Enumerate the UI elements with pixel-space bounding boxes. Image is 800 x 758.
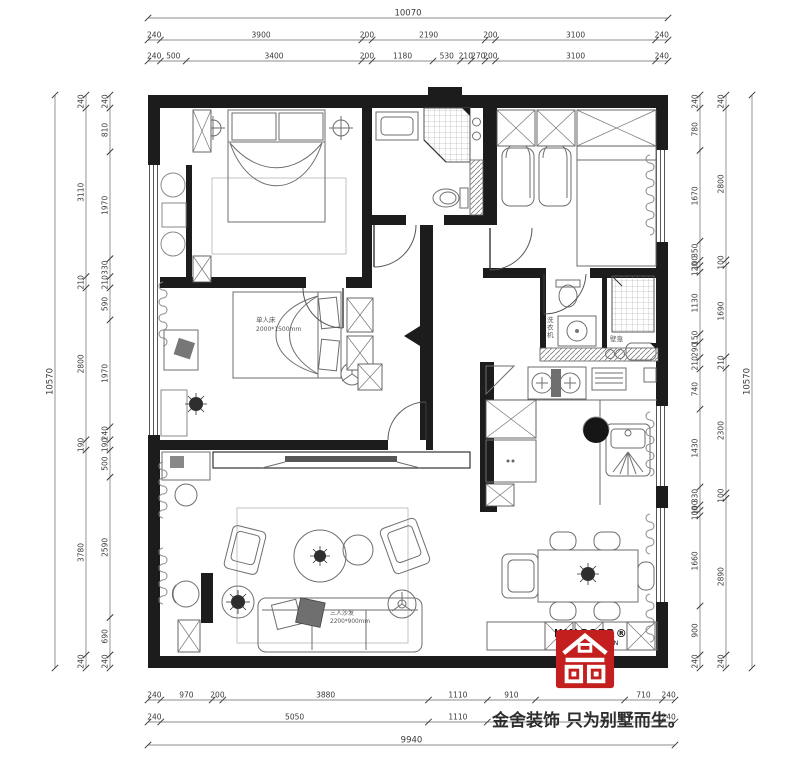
svg-text:1110: 1110 <box>448 691 467 700</box>
svg-text:240: 240 <box>147 691 162 700</box>
tv <box>285 456 397 462</box>
armchair <box>379 517 431 575</box>
single-bed <box>233 292 341 378</box>
svg-text:9940: 9940 <box>401 736 423 746</box>
svg-text:3400: 3400 <box>264 52 283 61</box>
bedroom-3 <box>502 142 656 266</box>
svg-text:740: 740 <box>691 382 700 397</box>
door-master <box>303 288 343 328</box>
svg-text:1110: 1110 <box>448 713 467 722</box>
desk-2 <box>162 452 210 506</box>
svg-text:1430: 1430 <box>691 438 700 457</box>
svg-text:810: 810 <box>101 123 110 138</box>
door-bath1 <box>374 225 416 267</box>
svg-text:3880: 3880 <box>316 691 335 700</box>
svg-text:3100: 3100 <box>566 52 585 61</box>
svg-text:1660: 1660 <box>691 551 700 570</box>
svg-text:200: 200 <box>360 52 375 61</box>
svg-text:2590: 2590 <box>101 538 110 557</box>
flue-bump <box>428 87 462 96</box>
side-table-fan <box>388 590 416 618</box>
svg-text:1130: 1130 <box>691 293 700 312</box>
svg-text:240: 240 <box>147 713 162 722</box>
balcony-chair <box>161 232 185 256</box>
stove <box>528 367 586 399</box>
svg-text:200: 200 <box>360 31 375 40</box>
rug <box>212 178 346 254</box>
svg-text:240: 240 <box>101 94 110 109</box>
svg-text:200: 200 <box>483 31 498 40</box>
centerpiece-plant <box>577 563 599 585</box>
bathroom-1 <box>376 108 481 208</box>
balcony-chair <box>161 173 185 197</box>
svg-text:590: 590 <box>101 297 110 312</box>
brand-tagline: 金舍装饰 只为别墅而生。 <box>492 706 702 731</box>
svg-text:1970: 1970 <box>101 196 110 215</box>
svg-text:3900: 3900 <box>252 31 271 40</box>
ceiling-lamp-icon <box>201 116 353 140</box>
vent-grill <box>592 368 626 390</box>
kingser-seal-icon <box>554 628 616 690</box>
balcony <box>161 173 187 436</box>
plant-2 <box>310 546 330 566</box>
svg-text:240: 240 <box>691 654 700 669</box>
svg-text:1690: 1690 <box>717 301 726 320</box>
svg-text:240: 240 <box>661 691 676 700</box>
door-bedroom3 <box>490 228 532 270</box>
side-table-plant <box>222 586 254 618</box>
shower <box>424 108 470 162</box>
svg-text:500: 500 <box>101 456 110 471</box>
svg-text:240: 240 <box>655 52 670 61</box>
svg-text:500: 500 <box>166 52 181 61</box>
svg-text:240: 240 <box>77 94 86 109</box>
svg-text:780: 780 <box>691 122 700 137</box>
svg-text:2300: 2300 <box>717 421 726 440</box>
plant <box>185 393 207 415</box>
svg-text:240: 240 <box>655 31 670 40</box>
svg-text:3780: 3780 <box>77 543 86 562</box>
toilet <box>433 188 468 208</box>
svg-text:200: 200 <box>210 691 225 700</box>
svg-text:210: 210 <box>77 275 86 290</box>
shower-2 <box>612 276 654 332</box>
tv-wall <box>213 452 470 468</box>
svg-text:530: 530 <box>440 52 455 61</box>
svg-text:290: 290 <box>691 342 700 357</box>
right-window-kitchen <box>654 406 670 486</box>
sofa-label-name: 三人沙发 <box>330 609 354 617</box>
dining-chairs <box>502 532 654 620</box>
sink <box>376 112 418 140</box>
balcony-cabinet <box>161 390 187 436</box>
bedroom-2: 单人床 2000*1500mm <box>164 292 341 415</box>
svg-text:10070: 10070 <box>394 9 421 19</box>
right-window-dining <box>654 508 670 602</box>
svg-text:190: 190 <box>77 438 86 453</box>
svg-text:350: 350 <box>691 243 700 258</box>
svg-text:210: 210 <box>101 275 110 290</box>
svg-text:210: 210 <box>691 356 700 371</box>
bed-label-name: 单人床 <box>256 315 276 324</box>
svg-text:2800: 2800 <box>77 354 86 373</box>
svg-text:3110: 3110 <box>77 183 86 202</box>
round-table <box>172 581 199 607</box>
svg-text:900: 900 <box>691 623 700 638</box>
svg-text:240: 240 <box>77 654 86 669</box>
brand-logo: KINGSER® DECORATION <box>554 628 624 647</box>
svg-text:2190: 2190 <box>419 31 438 40</box>
svg-text:240: 240 <box>691 94 700 109</box>
washer-label: 洗衣机 <box>547 315 554 339</box>
svg-text:330: 330 <box>101 260 110 275</box>
svg-text:1670: 1670 <box>691 186 700 205</box>
svg-text:2890: 2890 <box>717 567 726 586</box>
tub-chair <box>502 142 534 206</box>
svg-text:210: 210 <box>717 355 726 370</box>
svg-text:710: 710 <box>636 691 651 700</box>
floorplan-page: 单人床 2000*1500mm <box>0 0 800 758</box>
svg-text:200: 200 <box>483 52 498 61</box>
desk <box>164 330 198 370</box>
floorplan-drawing: 单人床 2000*1500mm <box>0 0 800 758</box>
balcony-table <box>162 203 186 227</box>
svg-text:240: 240 <box>101 654 110 669</box>
svg-text:240: 240 <box>147 31 162 40</box>
kitchen-sink <box>583 417 650 476</box>
bed-3 <box>577 146 656 266</box>
svg-text:910: 910 <box>504 691 519 700</box>
svg-text:690: 690 <box>101 629 110 644</box>
coffee-tables <box>294 530 373 582</box>
niche-label: 壁龛 <box>610 334 624 343</box>
toilet-2 <box>556 280 580 307</box>
wall-wedge <box>404 326 420 346</box>
svg-text:10570: 10570 <box>743 368 753 395</box>
svg-text:1180: 1180 <box>393 52 412 61</box>
living-rug <box>237 508 408 643</box>
svg-text:3100: 3100 <box>566 31 585 40</box>
interior-walls <box>160 95 658 623</box>
svg-text:2800: 2800 <box>717 174 726 193</box>
sofa-label-size: 2200*900mm <box>330 619 370 625</box>
arm-chair-dining <box>502 554 538 598</box>
armchair <box>223 525 267 576</box>
svg-text:240: 240 <box>717 94 726 109</box>
bathroom-2-laundry: 洗衣机 壁龛 <box>547 276 656 360</box>
double-bed <box>228 110 325 222</box>
svg-text:1970: 1970 <box>101 364 110 383</box>
tub-chair <box>539 142 571 206</box>
svg-text:240: 240 <box>147 52 162 61</box>
svg-text:190: 190 <box>101 438 110 453</box>
svg-text:10570: 10570 <box>46 368 56 395</box>
washing-machine <box>558 316 596 346</box>
svg-text:5050: 5050 <box>285 713 304 722</box>
svg-text:240: 240 <box>717 654 726 669</box>
svg-text:970: 970 <box>179 691 194 700</box>
master-bedroom <box>201 110 353 254</box>
bed-label-size: 2000*1500mm <box>256 326 301 333</box>
